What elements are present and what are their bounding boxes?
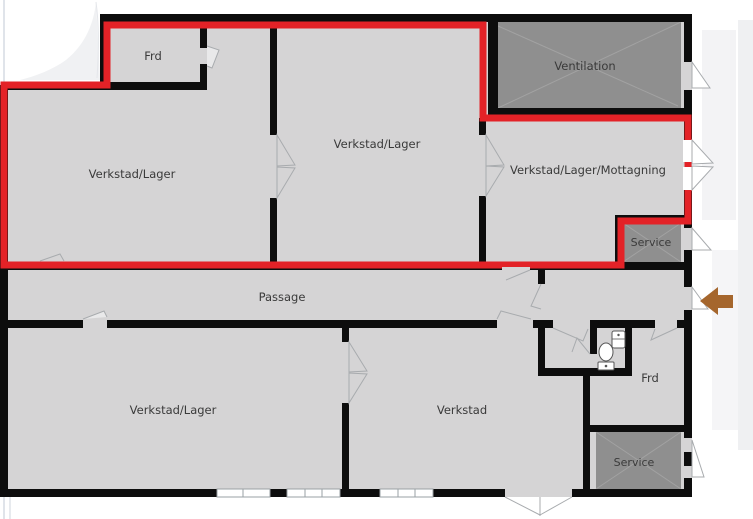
- room-label-verkstad-lager-bottom: Verkstad/Lager: [130, 403, 217, 417]
- wall-segment: [590, 425, 692, 432]
- wall-segment: [433, 489, 505, 497]
- wall-segment: [107, 320, 497, 328]
- room-label-frd-bottom: Frd: [641, 371, 659, 385]
- watermark-bottom-line: [9, 497, 11, 519]
- wall-segment: [684, 310, 692, 438]
- wall-segment: [583, 376, 590, 497]
- watermark-tower-sketch: [20, 2, 100, 80]
- wall-segment: [533, 320, 553, 328]
- wall-segment: [342, 328, 349, 342]
- sink-tap: [617, 334, 619, 336]
- toilet-bowl: [599, 343, 613, 361]
- door-swing: [692, 228, 711, 250]
- window-frame: [287, 489, 340, 497]
- wall-segment: [0, 320, 83, 328]
- wall-segment: [590, 328, 597, 354]
- wall-segment: [684, 14, 692, 62]
- room-label-service-bottom: Service: [614, 456, 655, 469]
- room-label-verkstad-lager-mid: Verkstad/Lager: [334, 137, 421, 151]
- wall-segment: [684, 452, 692, 466]
- window: [380, 489, 433, 497]
- window: [217, 489, 270, 497]
- windows: [217, 489, 433, 497]
- wall-segment: [270, 489, 287, 497]
- wall-segment: [488, 14, 498, 110]
- wall-segment: [200, 64, 207, 90]
- wall-segment: [684, 478, 692, 497]
- room-label-mottagning: Verkstad/Lager/Mottagning: [510, 163, 666, 177]
- toilet-flush: [605, 365, 608, 368]
- window: [287, 489, 340, 497]
- wall-segment: [479, 196, 486, 265]
- wall-segment: [342, 403, 349, 497]
- wall-segment: [100, 14, 692, 22]
- door-swing: [692, 440, 704, 477]
- toilet-icon: [598, 343, 614, 370]
- wall-segment: [538, 368, 632, 376]
- room-label-verkstad-lager-left: Verkstad/Lager: [89, 167, 176, 181]
- window-frame: [380, 489, 433, 497]
- room-label-passage: Passage: [259, 290, 306, 304]
- wall-segment: [270, 198, 277, 265]
- door-swing: [505, 497, 572, 516]
- wall-segment: [538, 270, 545, 284]
- room-label-verkstad: Verkstad: [437, 403, 487, 417]
- room-label-ventilation: Ventilation: [554, 59, 615, 73]
- floor-plan-page: Frd Verkstad/Lager Verkstad/Lager Ventil…: [0, 0, 753, 519]
- sink-basin: [612, 331, 625, 348]
- wall-segment: [538, 328, 545, 372]
- sink-icon: [612, 331, 625, 348]
- watermark-right-band: [702, 30, 736, 220]
- room-label-frd-top: Frd: [144, 49, 162, 63]
- floor-plan-canvas: Frd Verkstad/Lager Verkstad/Lager Ventil…: [0, 0, 753, 519]
- room-label-service-top: Service: [631, 236, 672, 249]
- watermark-right-band: [738, 20, 753, 450]
- wall-segment: [677, 320, 692, 328]
- wall-segment: [270, 22, 277, 135]
- wall-segment: [590, 320, 655, 328]
- wall-segment: [0, 489, 217, 497]
